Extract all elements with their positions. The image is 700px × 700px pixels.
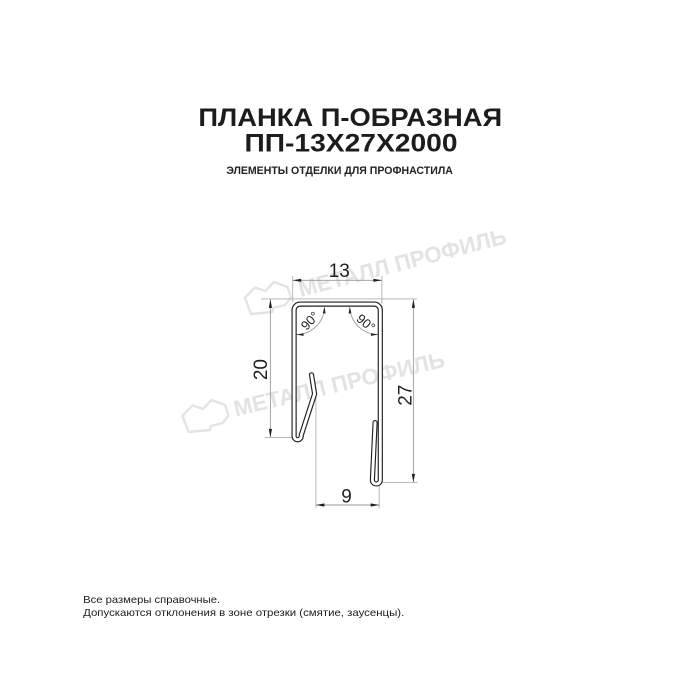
svg-text:МЕТАЛЛ ПРОФИЛЬ: МЕТАЛЛ ПРОФИЛЬ — [231, 347, 447, 421]
svg-text:9: 9 — [341, 487, 352, 508]
svg-text:ПП-13Х27Х2000: ПП-13Х27Х2000 — [245, 130, 458, 158]
svg-text:Допускаются отклонения в зоне: Допускаются отклонения в зоне отрезки (с… — [83, 608, 404, 619]
svg-text:МЕТАЛЛ ПРОФИЛЬ: МЕТАЛЛ ПРОФИЛЬ — [296, 224, 509, 302]
svg-text:ПЛАНКА П-ОБРАЗНАЯ: ПЛАНКА П-ОБРАЗНАЯ — [198, 104, 502, 132]
svg-text:90°: 90° — [298, 308, 322, 333]
svg-text:20: 20 — [251, 359, 272, 380]
svg-text:13: 13 — [329, 261, 350, 282]
svg-text:27: 27 — [395, 385, 416, 406]
svg-text:ЭЛЕМЕНТЫ ОТДЕЛКИ ДЛЯ ПРОФНАСТИ: ЭЛЕМЕНТЫ ОТДЕЛКИ ДЛЯ ПРОФНАСТИЛА — [226, 165, 453, 177]
svg-text:Все размеры справочные.: Все размеры справочные. — [83, 595, 220, 606]
svg-text:90°: 90° — [354, 311, 379, 335]
